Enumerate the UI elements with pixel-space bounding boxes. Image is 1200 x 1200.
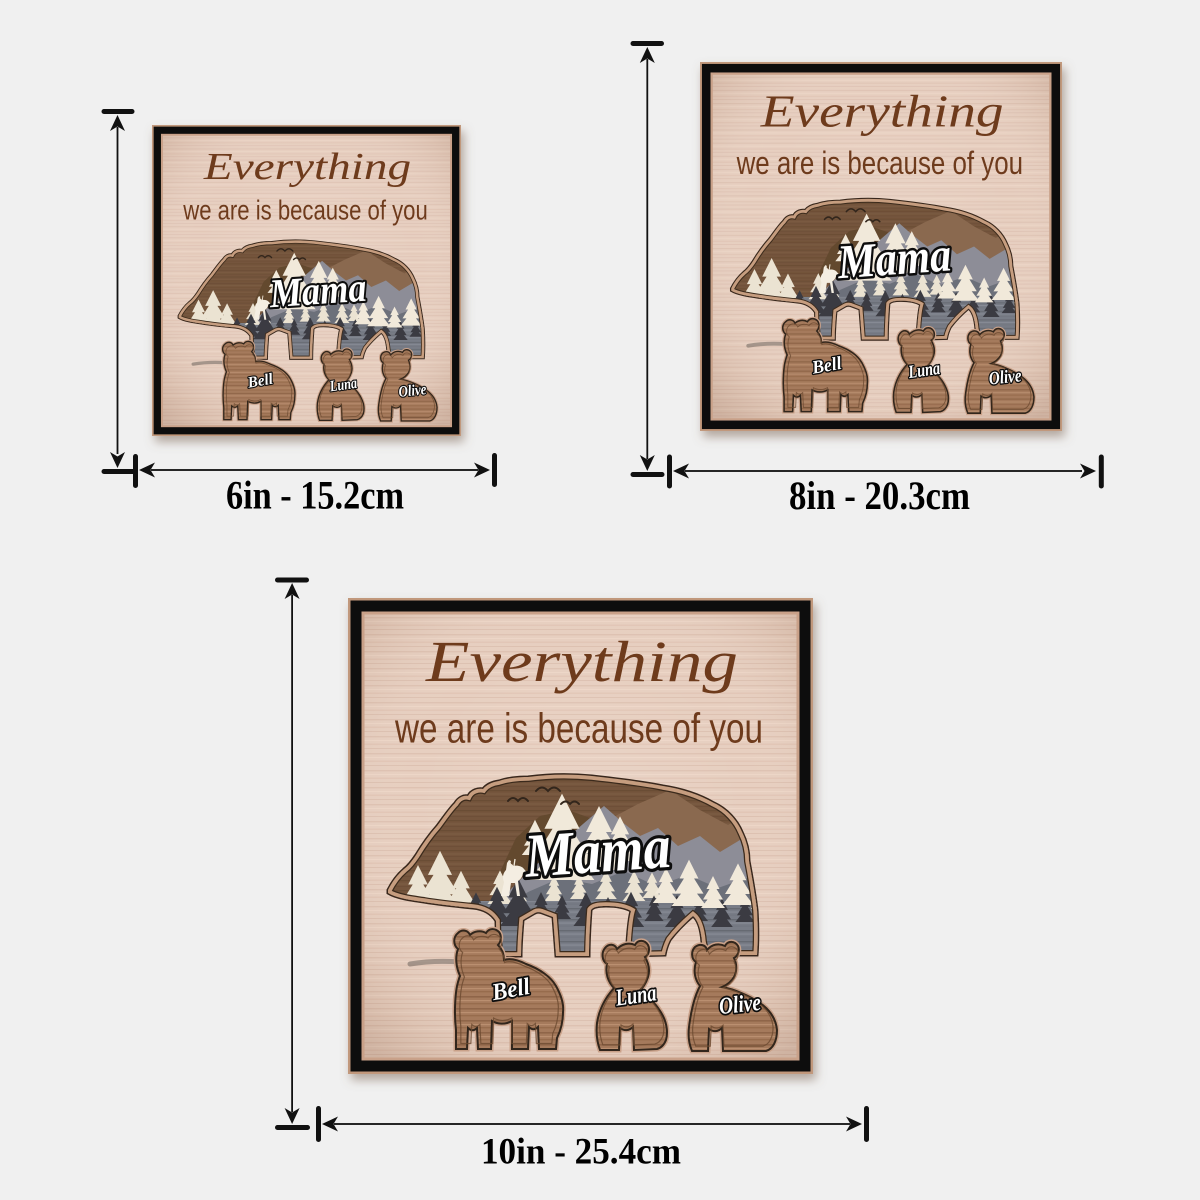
svg-text:8in - 20.3cm: 8in - 20.3cm: [789, 473, 970, 518]
svg-text:10in - 25.4cm: 10in - 25.4cm: [481, 1132, 681, 1173]
svg-text:6in - 15.2cm: 6in - 15.2cm: [226, 473, 404, 518]
